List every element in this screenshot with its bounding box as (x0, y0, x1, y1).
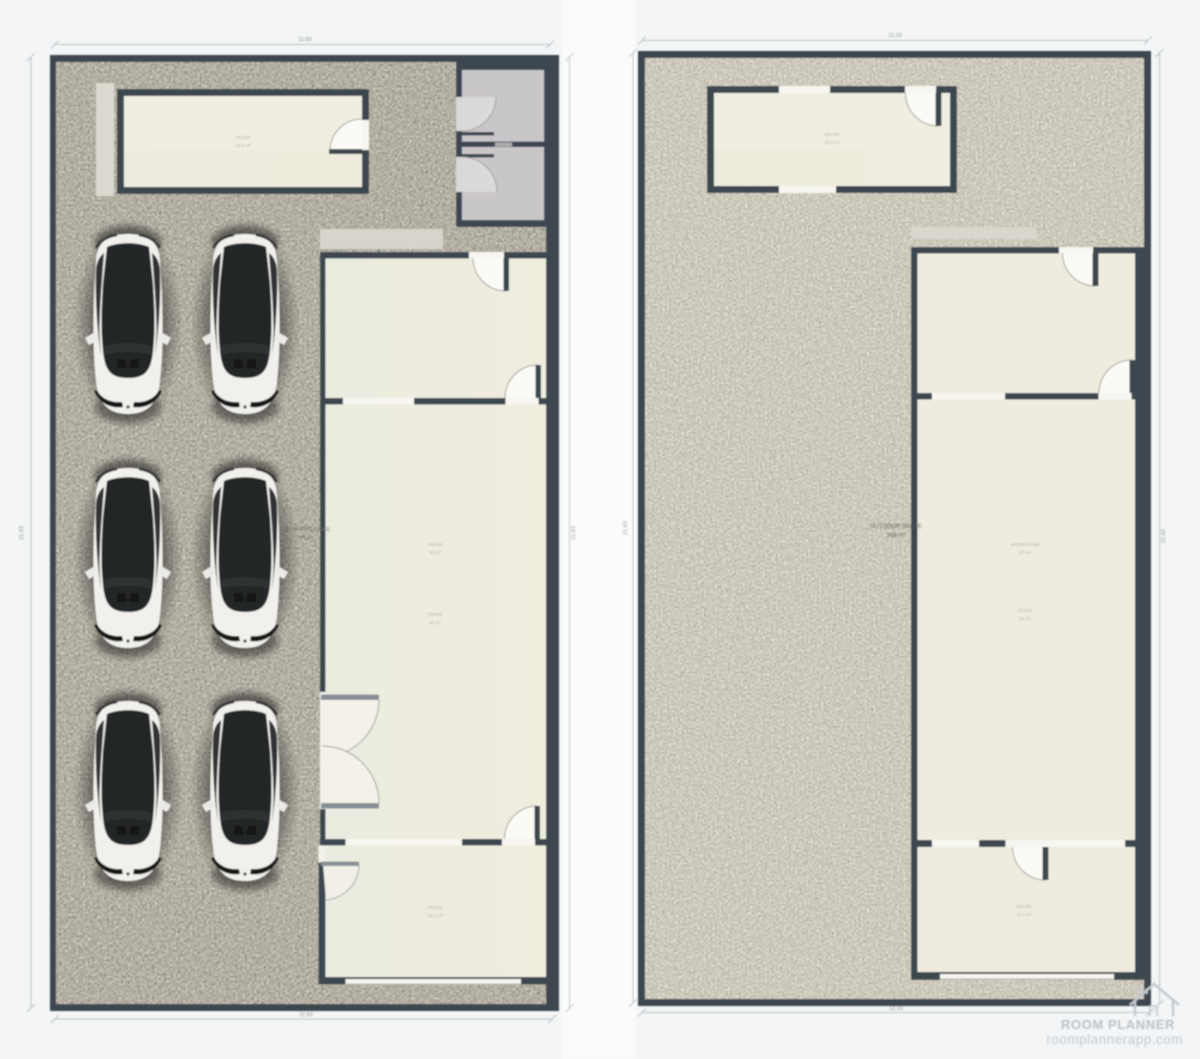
svg-text:ROOM PLANNER: ROOM PLANNER (1061, 1017, 1175, 1032)
svg-text:12.15: 12.15 (889, 1006, 903, 1012)
svg-text:366 m²: 366 m² (887, 533, 906, 539)
svg-text:ROOM: ROOM (428, 542, 442, 547)
svg-text:ROOM: ROOM (236, 135, 250, 140)
svg-text:ROOM: ROOM (428, 905, 442, 910)
svg-text:16.5 m²: 16.5 m² (235, 143, 251, 148)
svg-text:CARPARKING SPACE: CARPARKING SPACE (280, 527, 331, 533)
svg-text:16.5 m²: 16.5 m² (824, 140, 840, 145)
svg-text:21.63: 21.63 (623, 521, 629, 535)
svg-text:15 m²: 15 m² (1019, 616, 1031, 621)
svg-text:OUTDOOR SPACE: OUTDOOR SPACE (870, 524, 922, 530)
svg-text:ROOM: ROOM (1018, 608, 1032, 613)
svg-text:12.15: 12.15 (888, 33, 902, 39)
svg-text:21.63: 21.63 (1161, 529, 1167, 543)
svg-text:WORKROOM: WORKROOM (1011, 542, 1040, 547)
svg-text:246 m²: 246 m² (297, 535, 313, 541)
svg-text:roomplannerapp.com: roomplannerapp.com (1046, 1032, 1183, 1047)
svg-text:ROOM: ROOM (1017, 904, 1031, 909)
svg-text:16.1 m²: 16.1 m² (1016, 912, 1032, 917)
svg-text:ROOM: ROOM (428, 612, 442, 617)
svg-text:21.63: 21.63 (571, 526, 577, 540)
svg-text:32 m²: 32 m² (429, 550, 441, 555)
svg-text:ROOM: ROOM (825, 132, 839, 137)
svg-text:11.50: 11.50 (298, 37, 311, 43)
svg-text:16.1 m²: 16.1 m² (427, 913, 443, 918)
svg-text:21.63: 21.63 (19, 526, 25, 540)
svg-text:52 m²: 52 m² (429, 620, 441, 625)
svg-text:83 m²: 83 m² (1019, 550, 1031, 555)
svg-text:11.50: 11.50 (299, 1012, 312, 1018)
